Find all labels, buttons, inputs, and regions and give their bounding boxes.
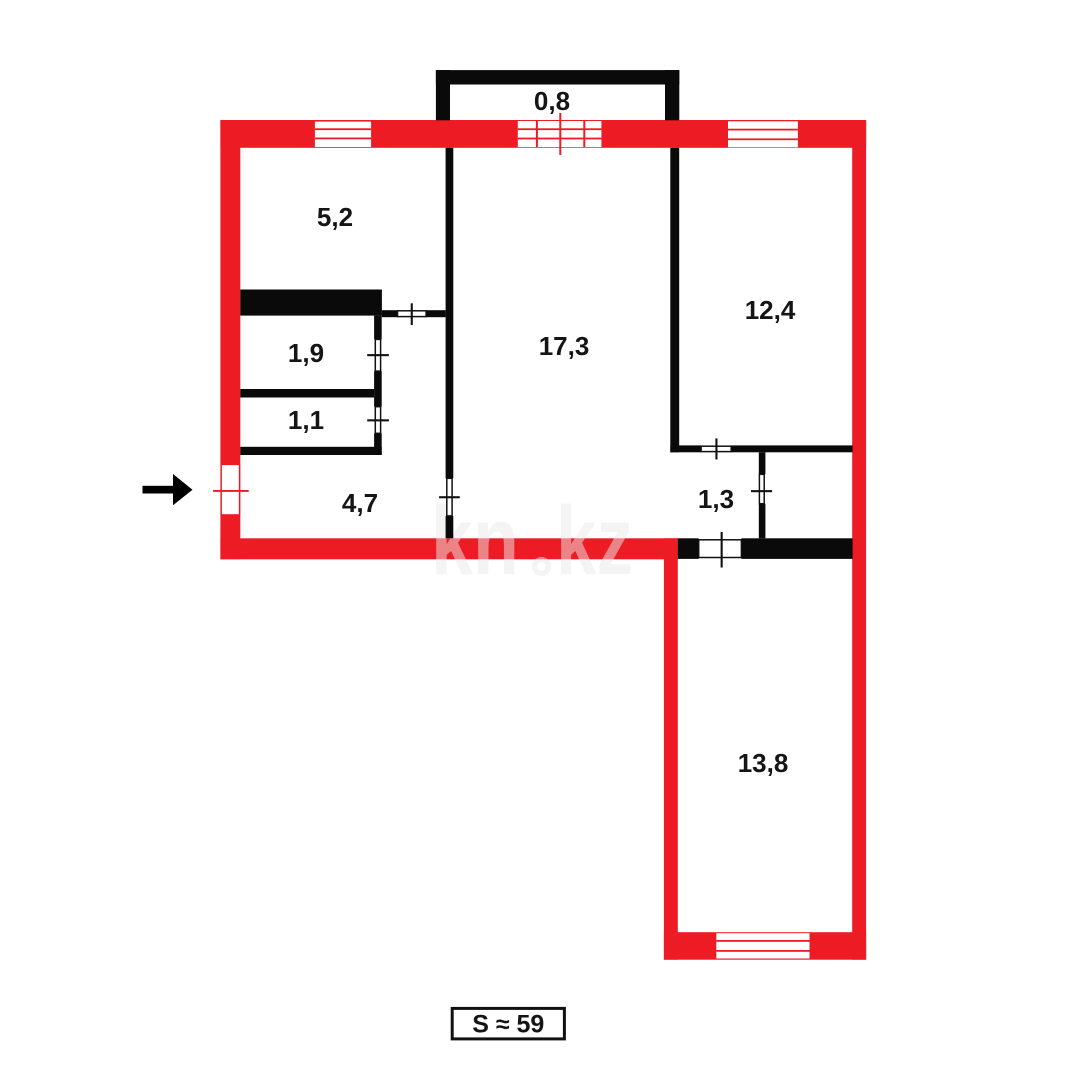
svg-text:13,8: 13,8 bbox=[738, 748, 789, 778]
svg-text:1,9: 1,9 bbox=[288, 338, 324, 368]
svg-text:0,8: 0,8 bbox=[534, 86, 570, 116]
svg-text:12,4: 12,4 bbox=[745, 295, 796, 325]
svg-text:17,3: 17,3 bbox=[539, 331, 590, 361]
svg-text:S ≈ 59: S ≈ 59 bbox=[472, 1011, 544, 1039]
svg-text:kz: kz bbox=[556, 486, 633, 595]
svg-text:1,1: 1,1 bbox=[288, 405, 324, 435]
svg-text:kn: kn bbox=[431, 486, 519, 595]
svg-text:4,7: 4,7 bbox=[342, 488, 378, 518]
svg-text:5,2: 5,2 bbox=[317, 202, 353, 232]
svg-text:1,3: 1,3 bbox=[698, 484, 734, 514]
